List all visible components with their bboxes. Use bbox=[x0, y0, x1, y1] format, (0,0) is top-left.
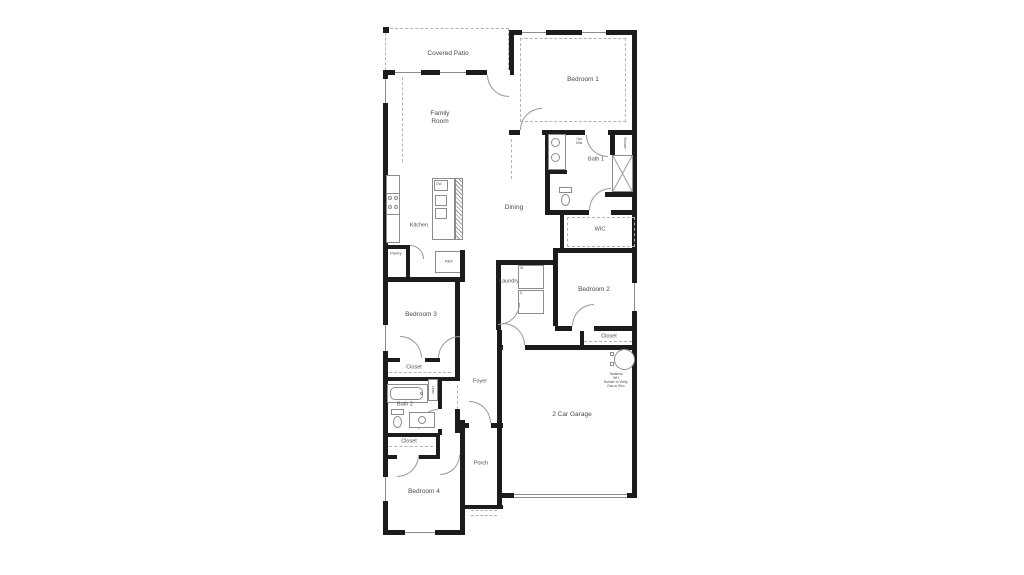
wh-note-line4: Gas or Elec bbox=[607, 384, 625, 388]
wall-bedroom2-left bbox=[553, 248, 558, 326]
room-label-porch: Porch bbox=[474, 461, 488, 468]
wall-bedroom2-bottom-a bbox=[555, 326, 572, 331]
bath1-door-arc bbox=[586, 135, 608, 157]
room-label-bedroom1: Bedroom 1 bbox=[567, 76, 599, 84]
room-label-bath2: Bath 2 bbox=[397, 402, 413, 409]
closet-bedroom4-rod bbox=[389, 446, 433, 447]
bedroom2-door-arc bbox=[572, 304, 594, 326]
garage-door-line-inner bbox=[514, 497, 627, 498]
window-family-top-left bbox=[395, 70, 421, 75]
wall-bedroom1-bottom-a bbox=[509, 130, 520, 135]
wall-bath1-hall-right bbox=[610, 135, 615, 155]
floor-plan: Covered Patio Bedroom 1 Family Room Dini… bbox=[383, 27, 645, 539]
wall-bedroom2-top bbox=[555, 248, 637, 253]
family-ceiling-break bbox=[402, 77, 403, 162]
bedroom3-door-arc bbox=[438, 336, 460, 358]
window-bedroom1-top-right bbox=[582, 30, 606, 35]
range-burner-1 bbox=[388, 196, 392, 200]
bedroom4-door-arc bbox=[440, 455, 460, 475]
wall-exterior-left bbox=[383, 70, 388, 535]
room-label-bedroom3: Bedroom 3 bbox=[405, 311, 437, 319]
label-refrigerator: REF bbox=[445, 260, 453, 265]
bath1-toilet-bowl bbox=[561, 194, 570, 206]
range-burner-3 bbox=[388, 205, 392, 209]
kitchen-island-bar-top bbox=[455, 178, 463, 240]
closet-bedroom4-door-arc bbox=[397, 455, 419, 477]
window-bedroom2-right bbox=[632, 283, 637, 311]
wall-bedroom2-bottom-b bbox=[594, 326, 637, 331]
bath2-tub-faucet bbox=[420, 392, 423, 395]
bath1-sink-2 bbox=[551, 153, 560, 162]
room-label-pantry: Pantry bbox=[390, 252, 402, 257]
wall-closet-bedroom4-bottom-b bbox=[419, 455, 440, 459]
window-family-top-right bbox=[440, 70, 466, 75]
wall-closet-bedroom3-bottom bbox=[386, 377, 460, 381]
shower-x-mark bbox=[613, 156, 632, 191]
wall-porch-bottom bbox=[463, 505, 503, 509]
closet-bedroom3-rod bbox=[389, 372, 451, 373]
laundry-door-arc bbox=[498, 303, 520, 325]
closet-bedroom3-door-arc bbox=[400, 336, 422, 358]
porch-steps bbox=[471, 510, 497, 516]
wall-garage-bottom-left-stub bbox=[498, 493, 514, 498]
water-heater-note: Tankless WH Builder to Verify Gas or Ele… bbox=[599, 372, 633, 388]
room-label-foyer: Foyer bbox=[473, 379, 487, 386]
room-label-bedroom2: Bedroom 2 bbox=[578, 286, 610, 294]
kitchen-sink-basin-1 bbox=[435, 195, 447, 206]
room-label-dining: Dining bbox=[505, 204, 523, 212]
water-heater-pipe-2 bbox=[610, 362, 614, 366]
bath2-toilet-tank bbox=[391, 409, 404, 415]
wall-garage-bottom-right-stub bbox=[627, 493, 637, 498]
label-linen: Linen bbox=[431, 386, 435, 394]
wall-wic-top-b bbox=[611, 210, 637, 215]
window-bedroom3-left bbox=[383, 325, 388, 351]
covered-patio-outline bbox=[385, 28, 509, 70]
garage-entry-door-arc bbox=[503, 323, 525, 345]
label-dishwasher: DW bbox=[436, 183, 442, 186]
wic-door-arc bbox=[589, 188, 611, 210]
bath2-tub-inner bbox=[390, 387, 423, 400]
screenshot-canvas: Covered Patio Bedroom 1 Family Room Dini… bbox=[0, 0, 1024, 575]
wall-bedroom3-bottom-a bbox=[386, 358, 400, 362]
bath1-sink-1 bbox=[551, 138, 560, 147]
patio-corner-post bbox=[383, 27, 389, 33]
water-heater-pipe-1 bbox=[610, 352, 614, 356]
wall-porch-left bbox=[460, 420, 465, 535]
room-label-family-room: Family Room bbox=[424, 110, 456, 126]
range-burner-4 bbox=[394, 205, 398, 209]
wall-bedroom3-right bbox=[455, 277, 460, 377]
bath1-toilet-tank bbox=[559, 187, 572, 193]
wall-closet-bedroom4-right bbox=[436, 433, 440, 455]
closet-label-bedroom2: Closet bbox=[601, 334, 617, 341]
closet-bedroom2-rod bbox=[584, 341, 632, 342]
wall-exterior-right bbox=[632, 30, 637, 498]
room-label-bedroom4: Bedroom 4 bbox=[408, 488, 440, 496]
garage-door-line-outer bbox=[514, 494, 627, 495]
wall-bedroom3-top bbox=[383, 277, 465, 282]
label-dryer: D bbox=[520, 292, 522, 295]
wall-patio-bedroom1-divider bbox=[509, 30, 514, 75]
range-burner-2 bbox=[394, 196, 398, 200]
water-heater bbox=[614, 349, 635, 370]
room-label-laundry: Laundry bbox=[499, 279, 519, 286]
room-label-bath1: Bath 1 bbox=[588, 157, 604, 164]
window-family-left bbox=[383, 79, 388, 103]
label-opt-sink: Opt Sink bbox=[573, 137, 585, 145]
window-bedroom4-bottom bbox=[405, 530, 435, 535]
wall-wic-left bbox=[560, 215, 564, 248]
dining-ceiling-break bbox=[511, 139, 512, 179]
wall-bath1-vanity-divider bbox=[545, 170, 567, 174]
closet-label-bedroom4: Closet bbox=[401, 439, 417, 446]
wall-closet-bedroom2-left bbox=[580, 331, 584, 345]
wall-wic-top-a bbox=[545, 210, 589, 215]
label-shower: Shower bbox=[623, 137, 627, 149]
window-bedroom1-top-left bbox=[522, 30, 546, 35]
front-door-arc bbox=[469, 401, 491, 423]
room-label-covered-patio: Covered Patio bbox=[425, 50, 471, 58]
wall-closet-bedroom4-bottom-a bbox=[386, 455, 397, 459]
foyer-opening-marker bbox=[457, 385, 458, 409]
wall-kitchen-nook-right bbox=[460, 250, 465, 277]
wall-garage-left bbox=[497, 330, 502, 505]
room-label-garage: 2 Car Garage bbox=[552, 411, 591, 419]
patio-door-arc bbox=[487, 75, 509, 97]
closet-label-bedroom3: Closet bbox=[406, 365, 422, 372]
wall-bath2-bottom bbox=[386, 433, 440, 437]
bath2-toilet-bowl bbox=[393, 416, 402, 428]
label-washer: W bbox=[520, 267, 523, 270]
wall-bath2-right-top bbox=[438, 381, 442, 409]
room-label-kitchen: Kitchen bbox=[410, 223, 428, 230]
kitchen-sink-basin-2 bbox=[435, 208, 447, 219]
window-bedroom4-left bbox=[383, 477, 388, 501]
bath1-shower bbox=[612, 155, 633, 192]
wall-bedroom3-bottom-b bbox=[425, 358, 440, 362]
room-label-wic: WIC bbox=[595, 227, 606, 234]
bath2-sink bbox=[418, 416, 426, 424]
pantry-door-arc bbox=[410, 245, 424, 259]
